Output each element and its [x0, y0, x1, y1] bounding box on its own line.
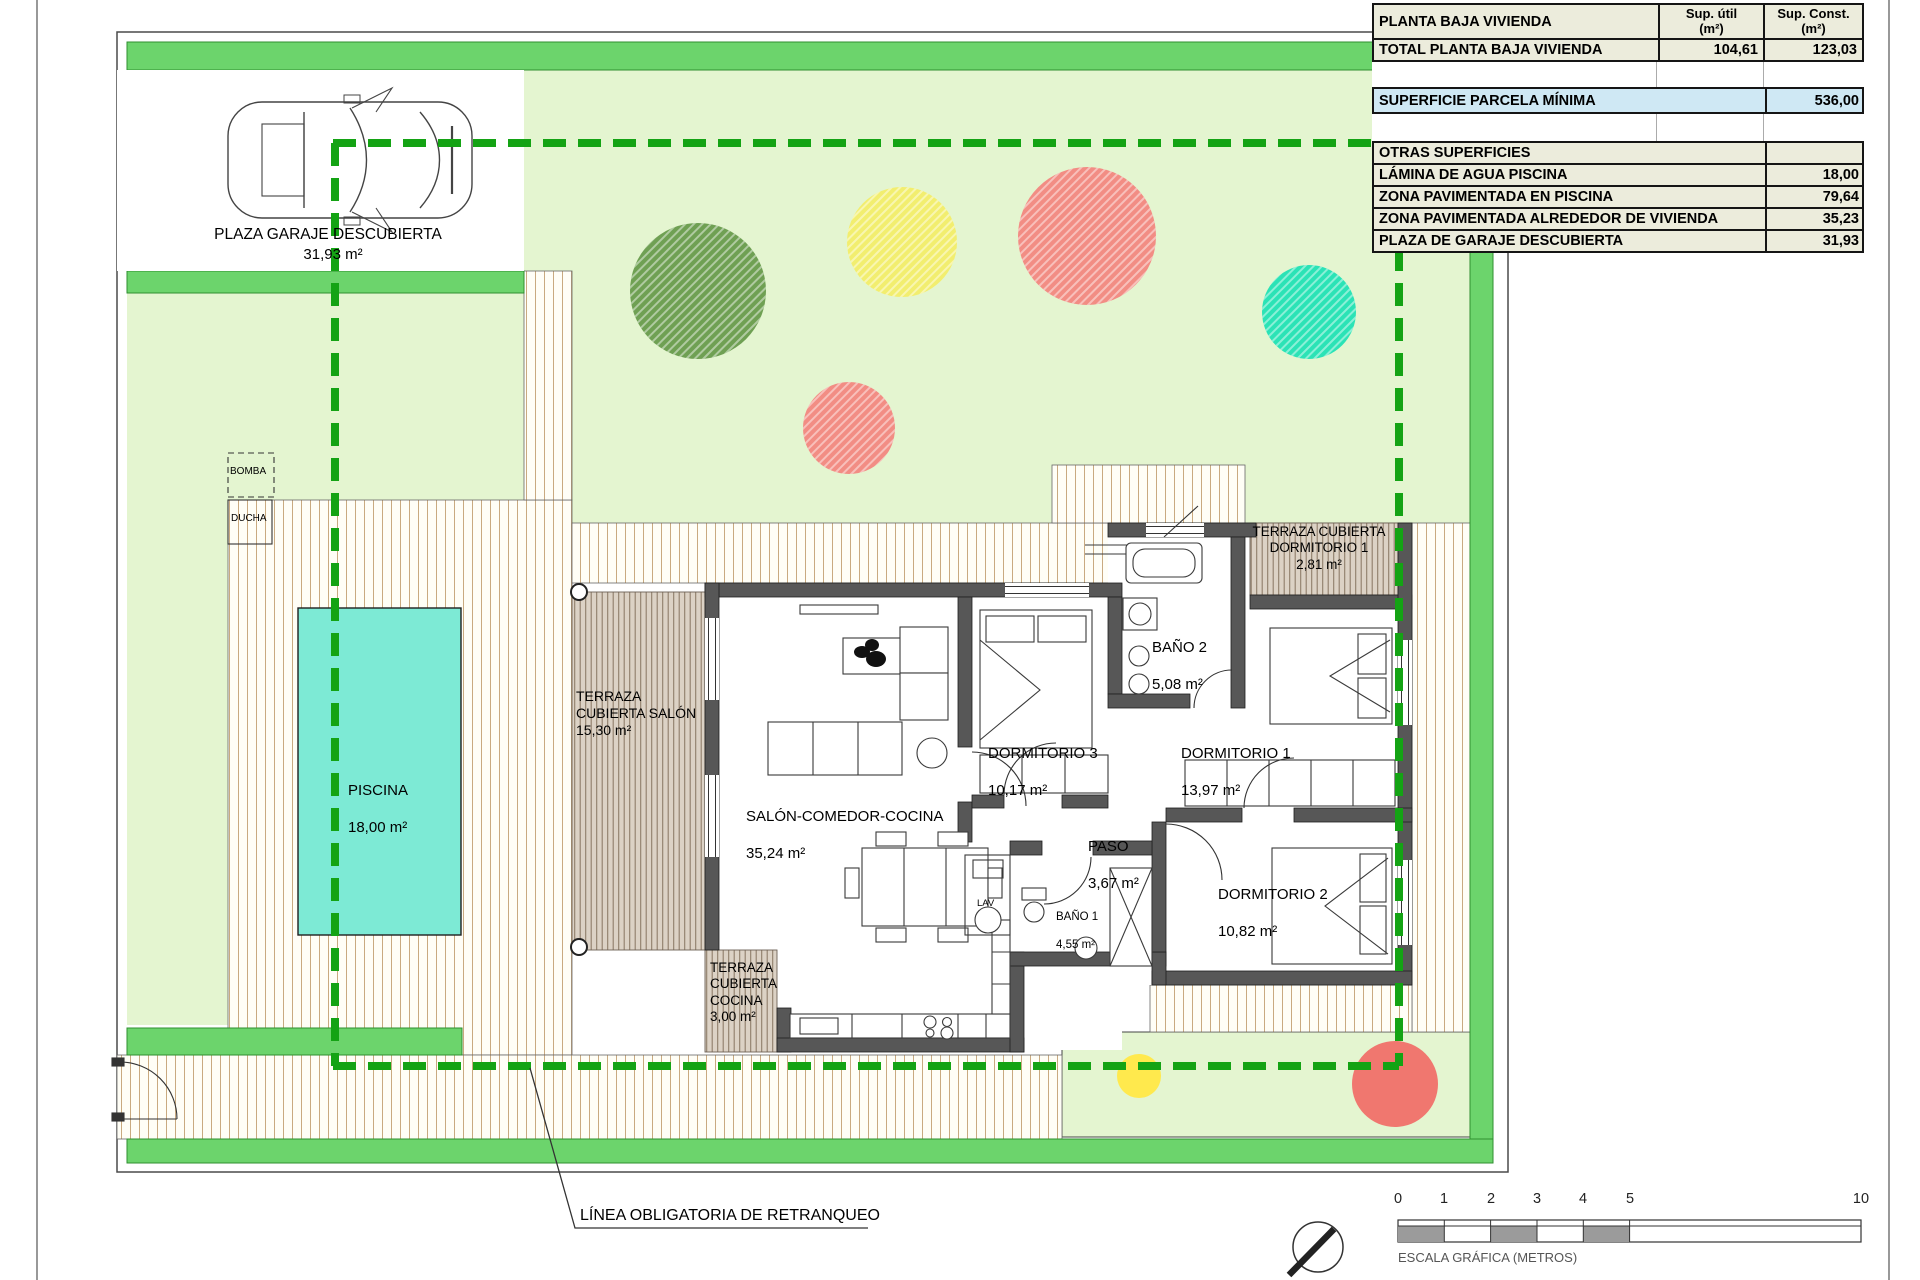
table-header-row: PLANTA BAJA VIVIENDA Sup. útil (m²) Sup.… — [1372, 3, 1864, 40]
bedroom2-area: 10,82 m² — [1218, 923, 1328, 941]
bath1-label: BAÑO 1 4,55 m² — [1056, 896, 1098, 966]
table-header-sup-util: Sup. útil (m²) — [1658, 5, 1763, 38]
bath1-name: BAÑO 1 — [1056, 910, 1098, 924]
total-label: TOTAL PLANTA BAJA VIVIENDA — [1374, 40, 1658, 60]
scale-tick-2: 2 — [1479, 1191, 1503, 1207]
bedroom1-label: DORMITORIO 1 13,97 m² — [1181, 727, 1291, 818]
shower-label: DUCHA — [231, 513, 267, 525]
floor-plan-sheet: PLAZA GARAJE DESCUBIERTA 31,93 m² BOMBA … — [0, 0, 1920, 1280]
table-otras-header-row: OTRAS SUPERFICIES — [1372, 141, 1864, 165]
garage-area-label: 31,93 m² — [278, 246, 388, 264]
setback-line-label: LÍNEA OBLIGATORIA DE RETRANQUEO — [580, 1206, 880, 1226]
terrace-bedroom1-label: TERRAZA CUBIERTA DORMITORIO 1 2,81 m² — [1238, 524, 1400, 573]
terrace-kitchen-label: TERRAZA CUBIERTA COCINA 3,00 m² — [710, 960, 777, 1026]
table-row: LÁMINA DE AGUA PISCINA 18,00 — [1372, 163, 1864, 187]
parcela-label: SUPERFICIE PARCELA MÍNIMA — [1374, 89, 1765, 112]
table-total-row: TOTAL PLANTA BAJA VIVIENDA 104,61 123,03 — [1372, 38, 1864, 62]
otras-header: OTRAS SUPERFICIES — [1374, 143, 1765, 163]
summary-table: PLANTA BAJA VIVIENDA Sup. útil (m²) Sup.… — [1372, 3, 1864, 253]
pool-label: PISCINA 18,00 m² — [348, 764, 408, 855]
shrub-yellow-icon — [1117, 1054, 1161, 1098]
row-value: 79,64 — [1765, 187, 1864, 207]
otras-header-empty — [1765, 143, 1864, 163]
row-label: LÁMINA DE AGUA PISCINA — [1374, 165, 1765, 185]
living-room-area: 35,24 m² — [746, 845, 944, 863]
row-label: ZONA PAVIMENTADA EN PISCINA — [1374, 187, 1765, 207]
bedroom1-name: DORMITORIO 1 — [1181, 745, 1291, 763]
scale-tick-5: 5 — [1618, 1191, 1642, 1207]
pool-name: PISCINA — [348, 782, 408, 800]
total-sup-const: 123,03 — [1763, 40, 1862, 60]
bedroom3-name: DORMITORIO 3 — [988, 745, 1098, 763]
scale-tick-0: 0 — [1386, 1191, 1410, 1207]
table-header-sup-const: Sup. Const. (m²) — [1763, 5, 1862, 38]
total-sup-util: 104,61 — [1658, 40, 1763, 60]
scale-caption: ESCALA GRÁFICA (METROS) — [1398, 1250, 1577, 1266]
hall-name: PASO — [1088, 838, 1139, 856]
bath1-area: 4,55 m² — [1056, 938, 1098, 952]
pump-label: BOMBA — [230, 466, 266, 478]
table-row: PLAZA DE GARAJE DESCUBIERTA 31,93 — [1372, 229, 1864, 253]
north-indicator-icon — [1289, 1222, 1343, 1275]
bedroom3-area: 10,17 m² — [988, 782, 1098, 800]
table-header-title: PLANTA BAJA VIVIENDA — [1374, 5, 1658, 38]
row-label: PLAZA DE GARAJE DESCUBIERTA — [1374, 231, 1765, 251]
table-gap — [1372, 114, 1864, 141]
row-label: ZONA PAVIMENTADA ALREDEDOR DE VIVIENDA — [1374, 209, 1765, 229]
table-parcela-row: SUPERFICIE PARCELA MÍNIMA 536,00 — [1372, 87, 1864, 114]
scale-bar — [1398, 1220, 1861, 1242]
row-value: 35,23 — [1765, 209, 1864, 229]
living-room-name: SALÓN-COMEDOR-COCINA — [746, 808, 944, 826]
scale-tick-4: 4 — [1571, 1191, 1595, 1207]
scale-tick-1: 1 — [1432, 1191, 1456, 1207]
bath2-area: 5,08 m² — [1152, 676, 1207, 694]
bedroom1-area: 13,97 m² — [1181, 782, 1291, 800]
scale-tick-3: 3 — [1525, 1191, 1549, 1207]
scale-tick-10: 10 — [1849, 1191, 1873, 1207]
bedroom3-label: DORMITORIO 3 10,17 m² — [988, 727, 1098, 818]
bedroom2-label: DORMITORIO 2 10,82 m² — [1218, 868, 1328, 959]
row-value: 18,00 — [1765, 165, 1864, 185]
table-gap — [1372, 62, 1864, 87]
row-value: 31,93 — [1765, 231, 1864, 251]
bath2-label: BAÑO 2 5,08 m² — [1152, 621, 1207, 712]
table-row: ZONA PAVIMENTADA EN PISCINA 79,64 — [1372, 185, 1864, 209]
parcela-value: 536,00 — [1765, 89, 1864, 112]
bath2-name: BAÑO 2 — [1152, 639, 1207, 657]
pool-area: 18,00 m² — [348, 819, 408, 837]
garage-label: PLAZA GARAJE DESCUBIERTA — [203, 226, 453, 245]
terrace-living — [572, 592, 705, 950]
bedroom2-name: DORMITORIO 2 — [1218, 886, 1328, 904]
laundry-label: LAV — [977, 898, 994, 910]
terrace-living-label: TERRAZA CUBIERTA SALÓN 15,30 m² — [576, 688, 696, 739]
living-room-label: SALÓN-COMEDOR-COCINA 35,24 m² — [746, 790, 944, 881]
table-row: ZONA PAVIMENTADA ALREDEDOR DE VIVIENDA 3… — [1372, 207, 1864, 231]
hall-area: 3,67 m² — [1088, 875, 1139, 893]
